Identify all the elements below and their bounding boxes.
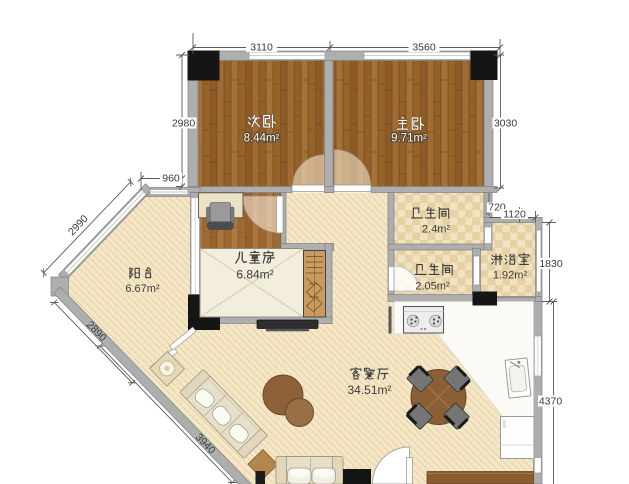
svg-text:8.44m²: 8.44m²	[244, 133, 280, 145]
svg-text:3030: 3030	[494, 118, 518, 130]
svg-text:9.71m²: 9.71m²	[391, 133, 427, 145]
svg-text:1830: 1830	[539, 258, 563, 270]
svg-text:2.05m²: 2.05m²	[415, 281, 450, 293]
svg-text:2.4m²: 2.4m²	[422, 224, 450, 236]
svg-text:2980: 2980	[172, 118, 196, 130]
svg-text:6.67m²: 6.67m²	[125, 283, 160, 295]
svg-text:1120: 1120	[503, 208, 526, 220]
svg-text:1.92m²: 1.92m²	[493, 270, 528, 282]
svg-text:960: 960	[162, 173, 180, 185]
svg-text:3560: 3560	[412, 42, 436, 54]
svg-text:4370: 4370	[539, 396, 563, 408]
svg-text:34.51m²: 34.51m²	[347, 383, 391, 397]
svg-text:3110: 3110	[250, 42, 273, 54]
svg-text:6.84m²: 6.84m²	[236, 268, 273, 282]
